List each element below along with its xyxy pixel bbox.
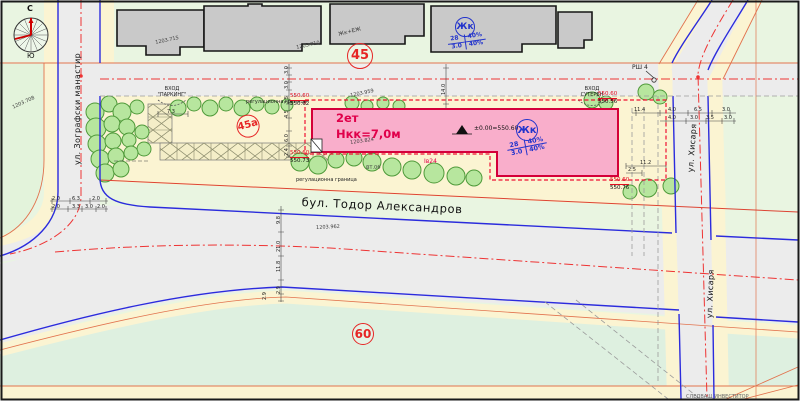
zone-value: 40% [465, 40, 487, 50]
compass-north-label: С [27, 5, 33, 13]
dimension-label: 3.0 [724, 116, 732, 121]
dimension-label: 3.5 [706, 116, 714, 121]
manhole-label: РШ 4 [632, 65, 648, 71]
dimension-label: 11.8 [277, 261, 282, 272]
dimension-label: 6.5 [694, 108, 702, 113]
dimension-label: 21.0 [277, 241, 282, 252]
compass-south-label: Ю [27, 53, 35, 60]
plot-number-circle: 45 [347, 43, 373, 69]
dimension-label: 3.0 [690, 116, 698, 121]
utility-label: ВТ.06 [366, 165, 381, 171]
dimension-label: 11.2 [640, 161, 651, 166]
zone-value: 40% [525, 144, 549, 156]
dimension-label: 3.0 [285, 66, 290, 74]
dimension-label: 2.9 [263, 292, 268, 300]
dimension-label: 14.0 [442, 84, 447, 95]
footer-text: СЛЕДВАЩ ИНВЕСТИТОР [686, 395, 749, 400]
dimension-label: 11.4 [634, 108, 645, 113]
dimension-label: 6.0 [285, 134, 290, 142]
dimension-label: 4.5 [285, 110, 290, 118]
dimension-label: 3.0 [85, 205, 93, 210]
elevation-existing: 550.73 [290, 158, 309, 164]
dimension-label: 2.0 [52, 197, 60, 202]
elevation-project: 550.60 [610, 177, 629, 185]
plot-number-circle: 60 [352, 323, 374, 345]
dimension-label: 2.0 [97, 205, 105, 210]
dimension-label: 9.8 [277, 216, 282, 224]
street-name-right-2: ул. Хисаря [706, 269, 716, 318]
dimension-label: 2.9 [277, 286, 282, 294]
zone-value: 3.0 [508, 148, 527, 159]
elevation-project: 550.60 [290, 150, 309, 158]
labels-layer: С Ю ул. Зографски манастир бул. Тодор Ал… [0, 0, 800, 401]
dimension-label: 3.0 [722, 108, 730, 113]
building-floors-label: 2ет [336, 112, 358, 124]
street-name-boulevard: бул. Тодор Александров [301, 196, 462, 215]
building-datum-label: ±0.00=550.60 [474, 126, 518, 132]
elevation-project: 550.60 [290, 93, 309, 101]
zone-symbol-values: 2840% 3.040% [447, 32, 487, 52]
plot-number-circle: 45а [234, 112, 262, 140]
elevation-existing: 550.56 [598, 99, 617, 105]
dimension-label: 4.0 [668, 116, 676, 121]
elevation-label: 550.60550.76 [610, 177, 629, 191]
elevation-project: 550.60 [598, 91, 617, 99]
site-plan: С Ю ул. Зографски манастир бул. Тодор Ал… [0, 0, 800, 401]
entrance-parking-line2: "ПАРКИНГ" [150, 93, 194, 99]
street-name-left: ул. Зографски манастир [74, 53, 82, 165]
survey-point-label: 1203.959 [350, 89, 374, 99]
building-top-label: Жк+ЕЖ [338, 27, 362, 38]
dimension-label: 4.0 [668, 108, 676, 113]
dimension-label: 6.3 [72, 197, 80, 202]
survey-point-label: 1203.708 [12, 96, 36, 111]
zone-value: 3.0 [448, 42, 465, 51]
dimension-label: 2.0 [92, 197, 100, 202]
regulation-boundary-label-2: регулационна граница [296, 178, 357, 183]
dimension-label: 7.3 [167, 110, 175, 115]
zone-symbol-values: 2840% 3.040% [506, 135, 548, 158]
elevation-existing: 550.62 [290, 101, 309, 107]
survey-point-label: 1203.715 [155, 36, 179, 46]
survey-point-label: 1203.962 [316, 225, 340, 231]
dimension-label: 3.0 [285, 81, 290, 89]
entrance-parking-label: ВХОД "ПАРКИНГ" [150, 87, 194, 99]
dimension-label: 2.0 [52, 205, 60, 210]
elevation-label: 550.60550.56 [598, 91, 617, 105]
dimension-label: 3.3 [72, 205, 80, 210]
plot-code-label: Iв24 [424, 159, 437, 165]
dimension-label: 2.5 [628, 168, 636, 173]
street-name-right: ул. Хисаря [687, 123, 699, 172]
survey-point-label: 1203.710 [296, 41, 320, 51]
survey-point-label: 1203.824 [350, 138, 374, 147]
elevation-label: 550.60550.73 [290, 150, 309, 164]
elevation-existing: 550.76 [610, 185, 629, 191]
elevation-label: 550.60550.62 [290, 93, 309, 107]
